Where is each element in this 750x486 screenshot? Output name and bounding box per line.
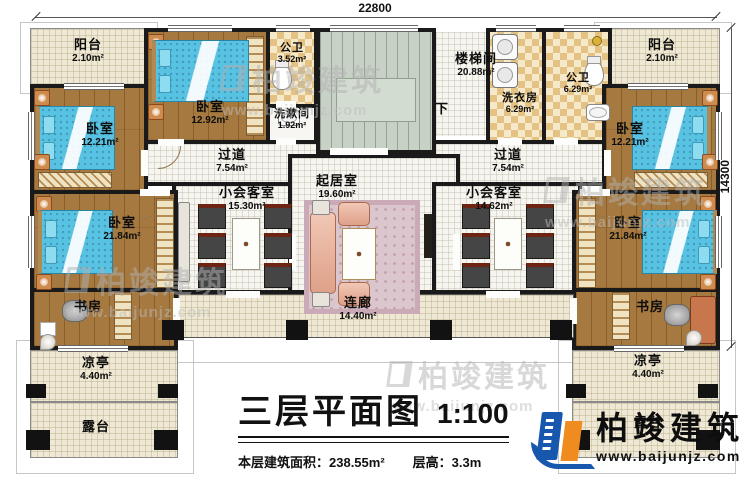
wardrobe-icon bbox=[38, 172, 112, 188]
nightstand-icon bbox=[700, 274, 716, 290]
window bbox=[715, 216, 722, 268]
label-bedroom-mid-left: 卧室12.92m² bbox=[165, 100, 255, 126]
bed-icon bbox=[152, 40, 249, 102]
plan-scale: 1:100 bbox=[437, 398, 509, 430]
window bbox=[496, 25, 536, 32]
side-table-icon bbox=[312, 200, 330, 215]
tv-icon bbox=[424, 214, 432, 258]
label-bath-right: 公卫6.29m² bbox=[533, 72, 623, 94]
column bbox=[154, 430, 178, 450]
nightstand-icon bbox=[702, 90, 718, 106]
label-bath-small: 公卫3.52m² bbox=[252, 42, 332, 64]
label-bedroom-left-top: 卧室12.21m² bbox=[55, 122, 145, 148]
column bbox=[698, 384, 718, 398]
label-pavilion-right: 凉亭4.40m² bbox=[603, 354, 693, 380]
label-corridor-left: 过道7.54m² bbox=[187, 148, 277, 174]
label-reception-left: 小会客室15.30m² bbox=[197, 186, 297, 212]
window bbox=[168, 25, 232, 32]
column bbox=[158, 384, 178, 398]
label-bedroom-right-top: 卧室12.21m² bbox=[585, 122, 675, 148]
label-study-left: 书房 bbox=[48, 300, 128, 315]
room-stair-hall bbox=[436, 32, 486, 136]
light-icon bbox=[592, 36, 602, 46]
meeting-chairs-icon bbox=[526, 204, 554, 288]
label-laundry: 洗衣房6.29m² bbox=[475, 92, 565, 114]
label-washroom: 洗漱间1.92m² bbox=[252, 108, 332, 130]
cabinet-icon bbox=[178, 202, 190, 282]
title-block: 三层平面图 1:100 本层建筑面积：238.55m² 层高：3.3m bbox=[238, 384, 509, 471]
speaker-icon bbox=[686, 330, 702, 346]
coffee-table-icon bbox=[342, 228, 376, 280]
window bbox=[330, 25, 418, 32]
label-terrace-left: 露台 bbox=[51, 420, 141, 435]
label-bedroom-left-big: 卧室21.84m² bbox=[77, 216, 167, 242]
door-gap bbox=[276, 101, 296, 108]
window bbox=[715, 112, 722, 160]
tea-table-icon bbox=[232, 218, 260, 270]
wardrobe-icon bbox=[578, 198, 596, 288]
window bbox=[64, 83, 124, 90]
window bbox=[628, 83, 688, 90]
meeting-chairs-icon bbox=[264, 204, 292, 288]
window bbox=[564, 25, 600, 32]
nightstand-icon bbox=[36, 274, 52, 290]
door-gap bbox=[330, 148, 388, 155]
floor-plan-page: 22800 14300 bbox=[0, 0, 750, 486]
company-logo-icon bbox=[536, 408, 588, 468]
sofa-icon bbox=[310, 212, 336, 294]
door-gap bbox=[554, 138, 578, 145]
dimension-top: 22800 bbox=[0, 1, 750, 15]
company-logo: 柏竣建筑 www.baijunjz.com bbox=[536, 408, 744, 468]
door-gap bbox=[141, 150, 148, 176]
meeting-chairs-icon bbox=[462, 204, 490, 288]
column bbox=[566, 384, 586, 398]
door-gap bbox=[498, 138, 522, 145]
toilet-icon bbox=[272, 64, 292, 90]
door-gap bbox=[580, 189, 610, 196]
title-underline bbox=[238, 436, 509, 443]
dimension-line-top bbox=[35, 17, 717, 18]
door-gap bbox=[453, 234, 460, 270]
tea-table-icon bbox=[494, 218, 522, 270]
stair-landing bbox=[336, 78, 416, 122]
column bbox=[26, 430, 50, 450]
door-gap bbox=[604, 150, 611, 176]
window bbox=[614, 345, 684, 352]
door-gap bbox=[226, 291, 260, 298]
label-reception-right: 小会客室14.62m² bbox=[444, 186, 544, 212]
door-gap bbox=[276, 138, 296, 145]
nightstand-icon bbox=[148, 104, 164, 120]
door-gap bbox=[140, 189, 170, 196]
dimension-right: 14300 bbox=[718, 160, 732, 193]
column bbox=[162, 320, 184, 340]
floor-area-label: 本层建筑面积：238.55m² bbox=[238, 452, 385, 471]
label-corridor-right: 过道7.54m² bbox=[463, 148, 553, 174]
armchair-icon bbox=[338, 202, 370, 226]
door-gap bbox=[486, 291, 520, 298]
window bbox=[28, 112, 35, 160]
window bbox=[58, 345, 128, 352]
column bbox=[430, 320, 452, 340]
nightstand-icon bbox=[34, 90, 50, 106]
window bbox=[276, 25, 310, 32]
column bbox=[550, 320, 572, 340]
label-balcony-left: 阳台2.10m² bbox=[43, 38, 133, 64]
nightstand-icon bbox=[34, 154, 50, 170]
wardrobe-icon bbox=[156, 198, 174, 288]
company-website: www.baijunjz.com bbox=[596, 448, 744, 464]
company-name: 柏竣建筑 bbox=[596, 412, 744, 444]
label-stairwell: 楼梯间20.88m² bbox=[434, 52, 518, 78]
wardrobe-icon bbox=[634, 172, 708, 188]
sink-icon bbox=[586, 104, 610, 121]
plan-title: 三层平面图 bbox=[238, 384, 423, 433]
door-gap bbox=[158, 139, 184, 146]
label-study-right: 书房 bbox=[610, 300, 690, 315]
label-pavilion-left: 凉亭4.40m² bbox=[51, 356, 141, 382]
eave-line bbox=[178, 362, 574, 363]
window bbox=[28, 216, 35, 268]
label-living: 起居室19.60m² bbox=[287, 174, 387, 200]
label-bedroom-right-big: 卧室21.84m² bbox=[583, 216, 673, 242]
floor-height-label: 层高：3.3m bbox=[413, 452, 482, 471]
label-balcony-right: 阳台2.10m² bbox=[617, 38, 707, 64]
meeting-chairs-icon bbox=[198, 204, 226, 288]
column bbox=[26, 384, 46, 398]
label-stairs-down: 下 bbox=[430, 102, 454, 117]
column bbox=[286, 320, 308, 340]
speaker-icon bbox=[40, 334, 56, 350]
label-corridor-bottom: 连廊14.40m² bbox=[313, 296, 403, 322]
